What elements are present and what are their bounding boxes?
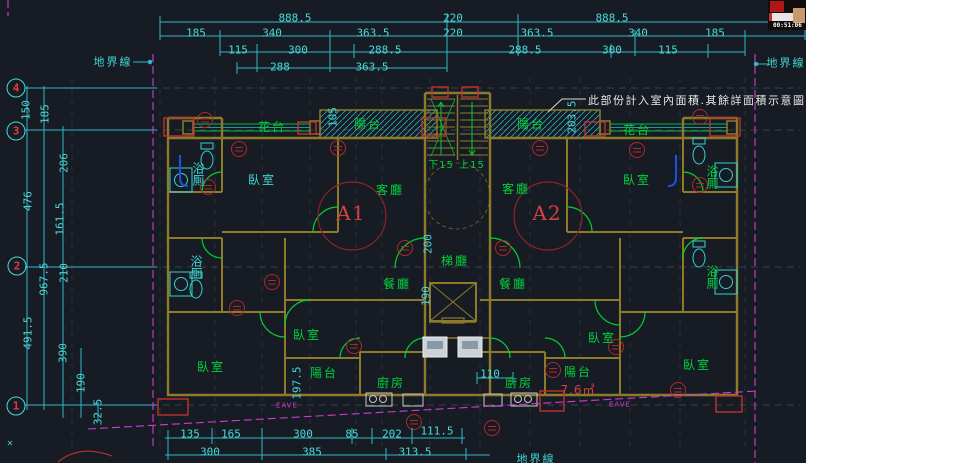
elevator	[430, 283, 476, 323]
grid-bubble-4: 4	[7, 79, 26, 98]
room-label-bedroom-bottom-right: 臥室	[683, 359, 711, 371]
room-label-dining-right: 餐廳	[499, 278, 527, 290]
dim-bot2-c: 313.5	[398, 447, 431, 458]
dim-inner-203-5: 203.5	[567, 100, 578, 133]
room-label-planter-left: 花台	[258, 121, 286, 133]
dim-left-32-5: 32.5	[93, 399, 104, 426]
dim-left-210: 210	[59, 263, 70, 283]
drawing-canvas[interactable]: 4 3 2 1 888.5 220 888.5 185 340 363.5 22…	[0, 0, 806, 463]
dim-bot1-d: 85	[345, 429, 358, 440]
room-label-dining-left: 餐廳	[383, 278, 411, 290]
dim-bot1-b: 165	[221, 429, 241, 440]
balcony-area-value: 7.6㎡	[560, 384, 595, 396]
boundary-label-top-left: 地界線	[94, 57, 133, 68]
dim-inner-105: 105	[328, 107, 339, 127]
room-label-kitchen-left: 廚房	[377, 377, 405, 389]
dim-bot1-a: 135	[180, 429, 200, 440]
room-label-bath-right-2: 浴厠	[706, 265, 718, 289]
dim-left-390: 390	[58, 343, 69, 363]
eave-label-left: EAVE	[276, 403, 298, 410]
dim-left-161-5: 161.5	[55, 202, 66, 235]
dim-left-206: 206	[59, 153, 70, 173]
grid-bubble-1-label: 1	[13, 400, 20, 413]
walls	[168, 93, 737, 395]
dim-left-150: 150	[21, 100, 32, 120]
room-label-bath-left-1: 浴厠	[192, 162, 204, 186]
room-label-bedroom-top-left: 臥室	[248, 174, 276, 186]
boundary-label-bottom: 地界線	[517, 454, 556, 463]
dim-top2-c: 363.5	[356, 28, 389, 39]
dim-left-491-5: 491.5	[23, 316, 34, 349]
dim-top2-b: 340	[262, 28, 282, 39]
boundary-label-top-right: 地界線	[767, 58, 806, 69]
grid-bubble-3: 3	[7, 122, 26, 141]
video-thumbnail-white	[769, 13, 794, 21]
dim-top2-g: 185	[705, 28, 725, 39]
room-label-bath-right-1: 浴厠	[706, 165, 718, 189]
dim-top3-c: 288.5	[368, 45, 401, 56]
dim-bot1-e: 202	[382, 429, 402, 440]
room-label-bedroom-center: 臥室	[293, 329, 321, 341]
video-timestamp: 00:51:06	[773, 22, 802, 29]
room-label-balcony-bottom-right: 陽台	[564, 366, 592, 378]
dim-top1-right: 888.5	[595, 13, 628, 24]
room-label-bath-left-2: 浴厠	[190, 255, 202, 279]
dim-inner-190: 190	[421, 286, 432, 306]
room-label-balcony-top-left: 陽台	[354, 118, 382, 130]
crosshair-marker: ✕	[7, 440, 14, 448]
dim-left-185: 185	[40, 104, 51, 124]
dim-top3-b: 300	[288, 45, 308, 56]
dim-top4-a: 288	[270, 62, 290, 73]
dim-left-967-5: 967.5	[39, 262, 50, 295]
dim-top1-left: 888.5	[278, 13, 311, 24]
screenshot-stage: 4 3 2 1 888.5 220 888.5 185 340 363.5 22…	[0, 0, 960, 463]
dim-bot2-b: 385	[302, 447, 322, 458]
room-label-planter-right: 花台	[623, 124, 651, 136]
dim-inner-200: 200	[423, 234, 434, 254]
room-label-bedroom-bottom-left: 臥室	[197, 361, 225, 373]
unit-label-a2: A2	[532, 203, 561, 223]
dim-left-190: 190	[76, 373, 87, 393]
room-label-stair-hall: 梯廳	[441, 255, 469, 267]
revision-arc	[58, 451, 112, 462]
dim-top2-a: 185	[186, 28, 206, 39]
room-label-bedroom-bottom-mid: 臥室	[588, 332, 616, 344]
dim-top3-a: 115	[228, 45, 248, 56]
unit-label-a1: A1	[336, 203, 365, 223]
window-markers	[158, 87, 742, 415]
room-label-balcony-bottom-left: 陽台	[310, 367, 338, 379]
right-blank-panel	[806, 0, 960, 463]
area-note: 此部份計入室內面積.其餘詳面積示意圖	[588, 92, 806, 108]
dim-inner-110: 110	[480, 369, 500, 380]
video-thumbnail-face	[793, 8, 805, 23]
dim-top3-e: 300	[602, 45, 622, 56]
dim-bot1-c: 300	[293, 429, 313, 440]
stair-up-label: 上15	[459, 161, 485, 171]
dim-top2-e: 363.5	[520, 28, 553, 39]
stair-down-label: 下15	[428, 161, 454, 171]
eave-label-right: EAVE	[609, 402, 631, 409]
room-label-kitchen-right: 廚房	[505, 377, 533, 389]
dim-bot1-f: 111.5	[420, 426, 453, 437]
video-overlay[interactable]: 00:51:06	[768, 0, 810, 30]
dim-top2-d: 220	[443, 28, 463, 39]
dim-top3-d: 288.5	[508, 45, 541, 56]
room-label-living-right: 客廳	[502, 183, 530, 195]
dim-top4-b: 363.5	[355, 62, 388, 73]
dim-inner-197-5: 197.5	[292, 366, 303, 399]
room-label-living-left: 客廳	[376, 184, 404, 196]
floorplan-linework	[0, 0, 806, 463]
dim-top1-mid: 220	[443, 13, 463, 24]
dim-top2-f: 340	[628, 28, 648, 39]
grid-bubble-2-label: 2	[14, 260, 21, 273]
grid-bubble-2: 2	[8, 257, 27, 276]
room-label-balcony-top-right: 陽台	[517, 118, 545, 130]
dim-left-476: 476	[23, 191, 34, 211]
dim-bot2-a: 300	[200, 447, 220, 458]
grid-bubble-3-label: 3	[13, 125, 20, 138]
dim-top3-f: 115	[658, 45, 678, 56]
grid-bubble-1: 1	[7, 397, 26, 416]
grid-bubble-4-label: 4	[13, 82, 20, 95]
room-label-bedroom-top-right: 臥室	[623, 174, 651, 186]
video-thumbnail-red	[770, 1, 784, 12]
